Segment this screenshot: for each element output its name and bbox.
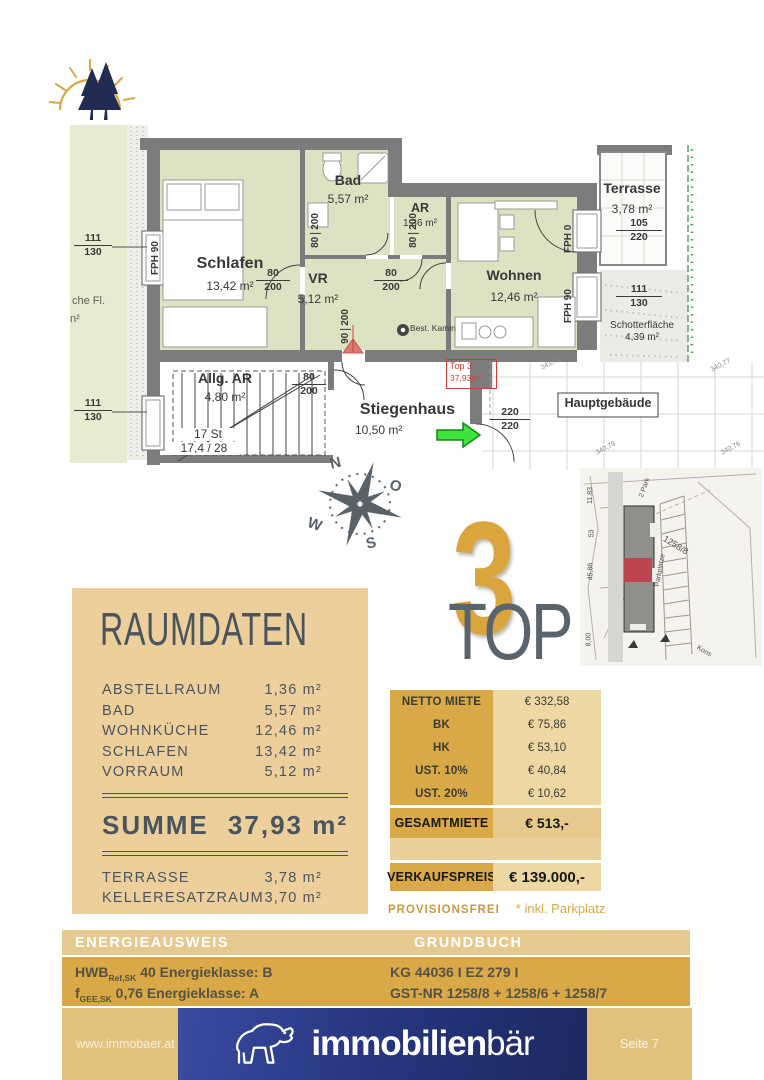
- site-plan: 11,83 53 45,86 8,00 1258/8 Parkplätze 2 …: [580, 468, 762, 666]
- stairs-count: 17 St: [178, 428, 238, 441]
- price-row: NETTO MIETE € 332,58: [390, 690, 601, 713]
- room-area-wohnen: 12,46 m²: [474, 291, 554, 304]
- room-label-stiegenhaus: Stiegenhaus: [345, 401, 470, 419]
- room-label-allg-ar: Allg. AR: [180, 371, 270, 386]
- raumdaten-row: TERRASSE3,78 m²: [102, 868, 322, 889]
- spacer: [390, 838, 601, 860]
- hauptgebaeude-label: Hauptgebäude: [558, 396, 658, 410]
- unit-word-top: TOP: [448, 592, 571, 672]
- provisionsfrei-label: PROVISIONSFREI: [388, 904, 500, 916]
- bear-icon: [231, 1016, 303, 1072]
- room-label-bad: Bad: [318, 173, 378, 188]
- sun-trees-logo-icon: [48, 50, 143, 120]
- kamin-label: Best. Kamin: [410, 324, 470, 333]
- hwb-line: HWBRef,SK 40 Energieklasse: B: [75, 964, 273, 983]
- dim-door-bad: 80 200: [310, 213, 321, 248]
- dim-terrasse-door: 105 220: [616, 217, 662, 244]
- raumdaten-row: BAD5,57 m²: [102, 701, 322, 722]
- compass-rose: N O W S: [300, 448, 420, 560]
- dim-door-schlafen: 80 200: [256, 267, 290, 294]
- fph-label-terrasse: FPH 0: [563, 205, 574, 253]
- raumdaten-row: WOHNKÜCHE12,46 m²: [102, 721, 322, 742]
- summe-row: SUMME 37,93 m²: [102, 810, 348, 841]
- brand-wordmark: immobilienbär: [311, 1024, 533, 1064]
- top3-marker: Top 3 37,93m²: [446, 359, 497, 389]
- verkaufspreis-row: VERKAUFSPREIS € 139.000,-: [390, 863, 601, 891]
- raumdaten-panel: RAUMDATEN ABSTELLRAUM1,36 m² BAD5,57 m² …: [72, 588, 368, 914]
- band-body: HWBRef,SK 40 Energieklasse: B fGEE,SK 0,…: [62, 957, 690, 1006]
- raumdaten-rows: ABSTELLRAUM1,36 m² BAD5,57 m² WOHNKÜCHE1…: [102, 680, 322, 783]
- siteplan-label-2: 53: [588, 530, 595, 538]
- energie-grundbuch-band: ENERGIEAUSWEIS GRUNDBUCH HWBRef,SK 40 En…: [62, 930, 690, 1006]
- expose-page: che Fl. n² Schlafen 13,42 m² Bad 5,57 m²…: [0, 0, 764, 1080]
- dim-window-right: 111 130: [616, 283, 662, 310]
- compass-w: W: [305, 514, 325, 535]
- raumdaten-row: SCHLAFEN13,42 m²: [102, 742, 322, 763]
- stairs-dimensions: 17,4 / 28: [168, 442, 240, 455]
- price-footnotes: PROVISIONSFREI * inkl. Parkplatz: [388, 901, 628, 916]
- fph-label-right: FPH 90: [563, 275, 574, 323]
- raumdaten-row: VORRAUM5,12 m²: [102, 762, 322, 783]
- dim-window-left-top: 111 130: [74, 232, 112, 259]
- room-label-terrasse: Terrasse: [598, 181, 666, 196]
- room-area-vr: 5,12 m²: [288, 293, 348, 306]
- website-url[interactable]: www.immobaer.at: [76, 1037, 175, 1051]
- garden-label-2: n²: [70, 313, 80, 325]
- fph-label-left: FPH 90: [150, 223, 161, 275]
- dim-door-ar: 80 200: [408, 213, 419, 248]
- raumdaten-title: RAUMDATEN: [100, 602, 288, 656]
- dim-door-allg-ar: 80 200: [292, 371, 326, 398]
- room-label-schotterflaeche: Schotterfläche: [596, 320, 688, 331]
- room-label-wohnen: Wohnen: [474, 268, 554, 283]
- divider: [102, 793, 348, 798]
- fgee-line: fGEE,SK 0,76 Energieklasse: A: [75, 985, 259, 1004]
- siteplan-label-4: 8,00: [585, 633, 592, 647]
- room-area-bad: 5,57 m²: [318, 193, 378, 206]
- parkplatz-note: * inkl. Parkplatz: [516, 901, 606, 916]
- brand-block: immobilienbär: [178, 1008, 587, 1080]
- gst-line: GST-NR 1258/8 + 1258/6 + 1258/7: [390, 985, 607, 1001]
- price-row: HK € 53,10: [390, 736, 601, 759]
- room-area-stiegenhaus: 10,50 m²: [345, 424, 480, 437]
- price-row: BK € 75,86: [390, 713, 601, 736]
- raumdaten-row: KELLERESATZRAUM3,70 m²: [102, 888, 322, 909]
- room-area-allg-ar: 4,80 m²: [180, 391, 270, 404]
- room-label-ar: AR: [394, 202, 446, 216]
- floor-plan: che Fl. n² Schlafen 13,42 m² Bad 5,57 m²…: [70, 125, 764, 470]
- price-row: UST. 20% € 10,62: [390, 782, 601, 805]
- compass-s: S: [364, 534, 378, 553]
- compass-o: O: [387, 476, 404, 496]
- dim-door-wohnen: 80 200: [374, 267, 408, 294]
- siteplan-label-3: 45,86: [587, 563, 594, 581]
- kg-ez-line: KG 44036 I EZ 279 I: [390, 964, 518, 980]
- room-label-vr: VR: [288, 271, 348, 286]
- footer: www.immobaer.at immobilienbär Seite 7: [62, 1008, 692, 1080]
- page-number: Seite 7: [620, 1037, 659, 1051]
- gesamtmiete-row: GESAMTMIETE € 513,-: [390, 808, 601, 838]
- room-area-terrasse: 3,78 m²: [598, 203, 666, 216]
- band-header: ENERGIEAUSWEIS GRUNDBUCH: [62, 930, 690, 955]
- price-row: UST. 10% € 40,84: [390, 759, 601, 782]
- raumdaten-row: ABSTELLRAUM1,36 m²: [102, 680, 322, 701]
- energieausweis-title: ENERGIEAUSWEIS: [75, 935, 229, 951]
- room-area-ar: 1,36 m²: [394, 218, 446, 229]
- compass-n: N: [328, 454, 343, 473]
- garden-label-1: che Fl.: [72, 295, 105, 307]
- dim-haupt-door: 220 220: [490, 406, 530, 433]
- divider: [102, 851, 348, 856]
- dim-window-left-bottom: 111 130: [74, 397, 112, 424]
- price-table: NETTO MIETE € 332,58 BK € 75,86 HK € 53,…: [390, 690, 601, 891]
- grundbuch-title: GRUNDBUCH: [414, 935, 523, 951]
- siteplan-label-1: 11,83: [587, 487, 594, 504]
- raumdaten-extra-rows: TERRASSE3,78 m² KELLERESATZRAUM3,70 m²: [102, 868, 322, 909]
- room-area-schotterflaeche: 4,39 m²: [596, 332, 688, 343]
- dim-door-vr: 90 200: [340, 309, 351, 344]
